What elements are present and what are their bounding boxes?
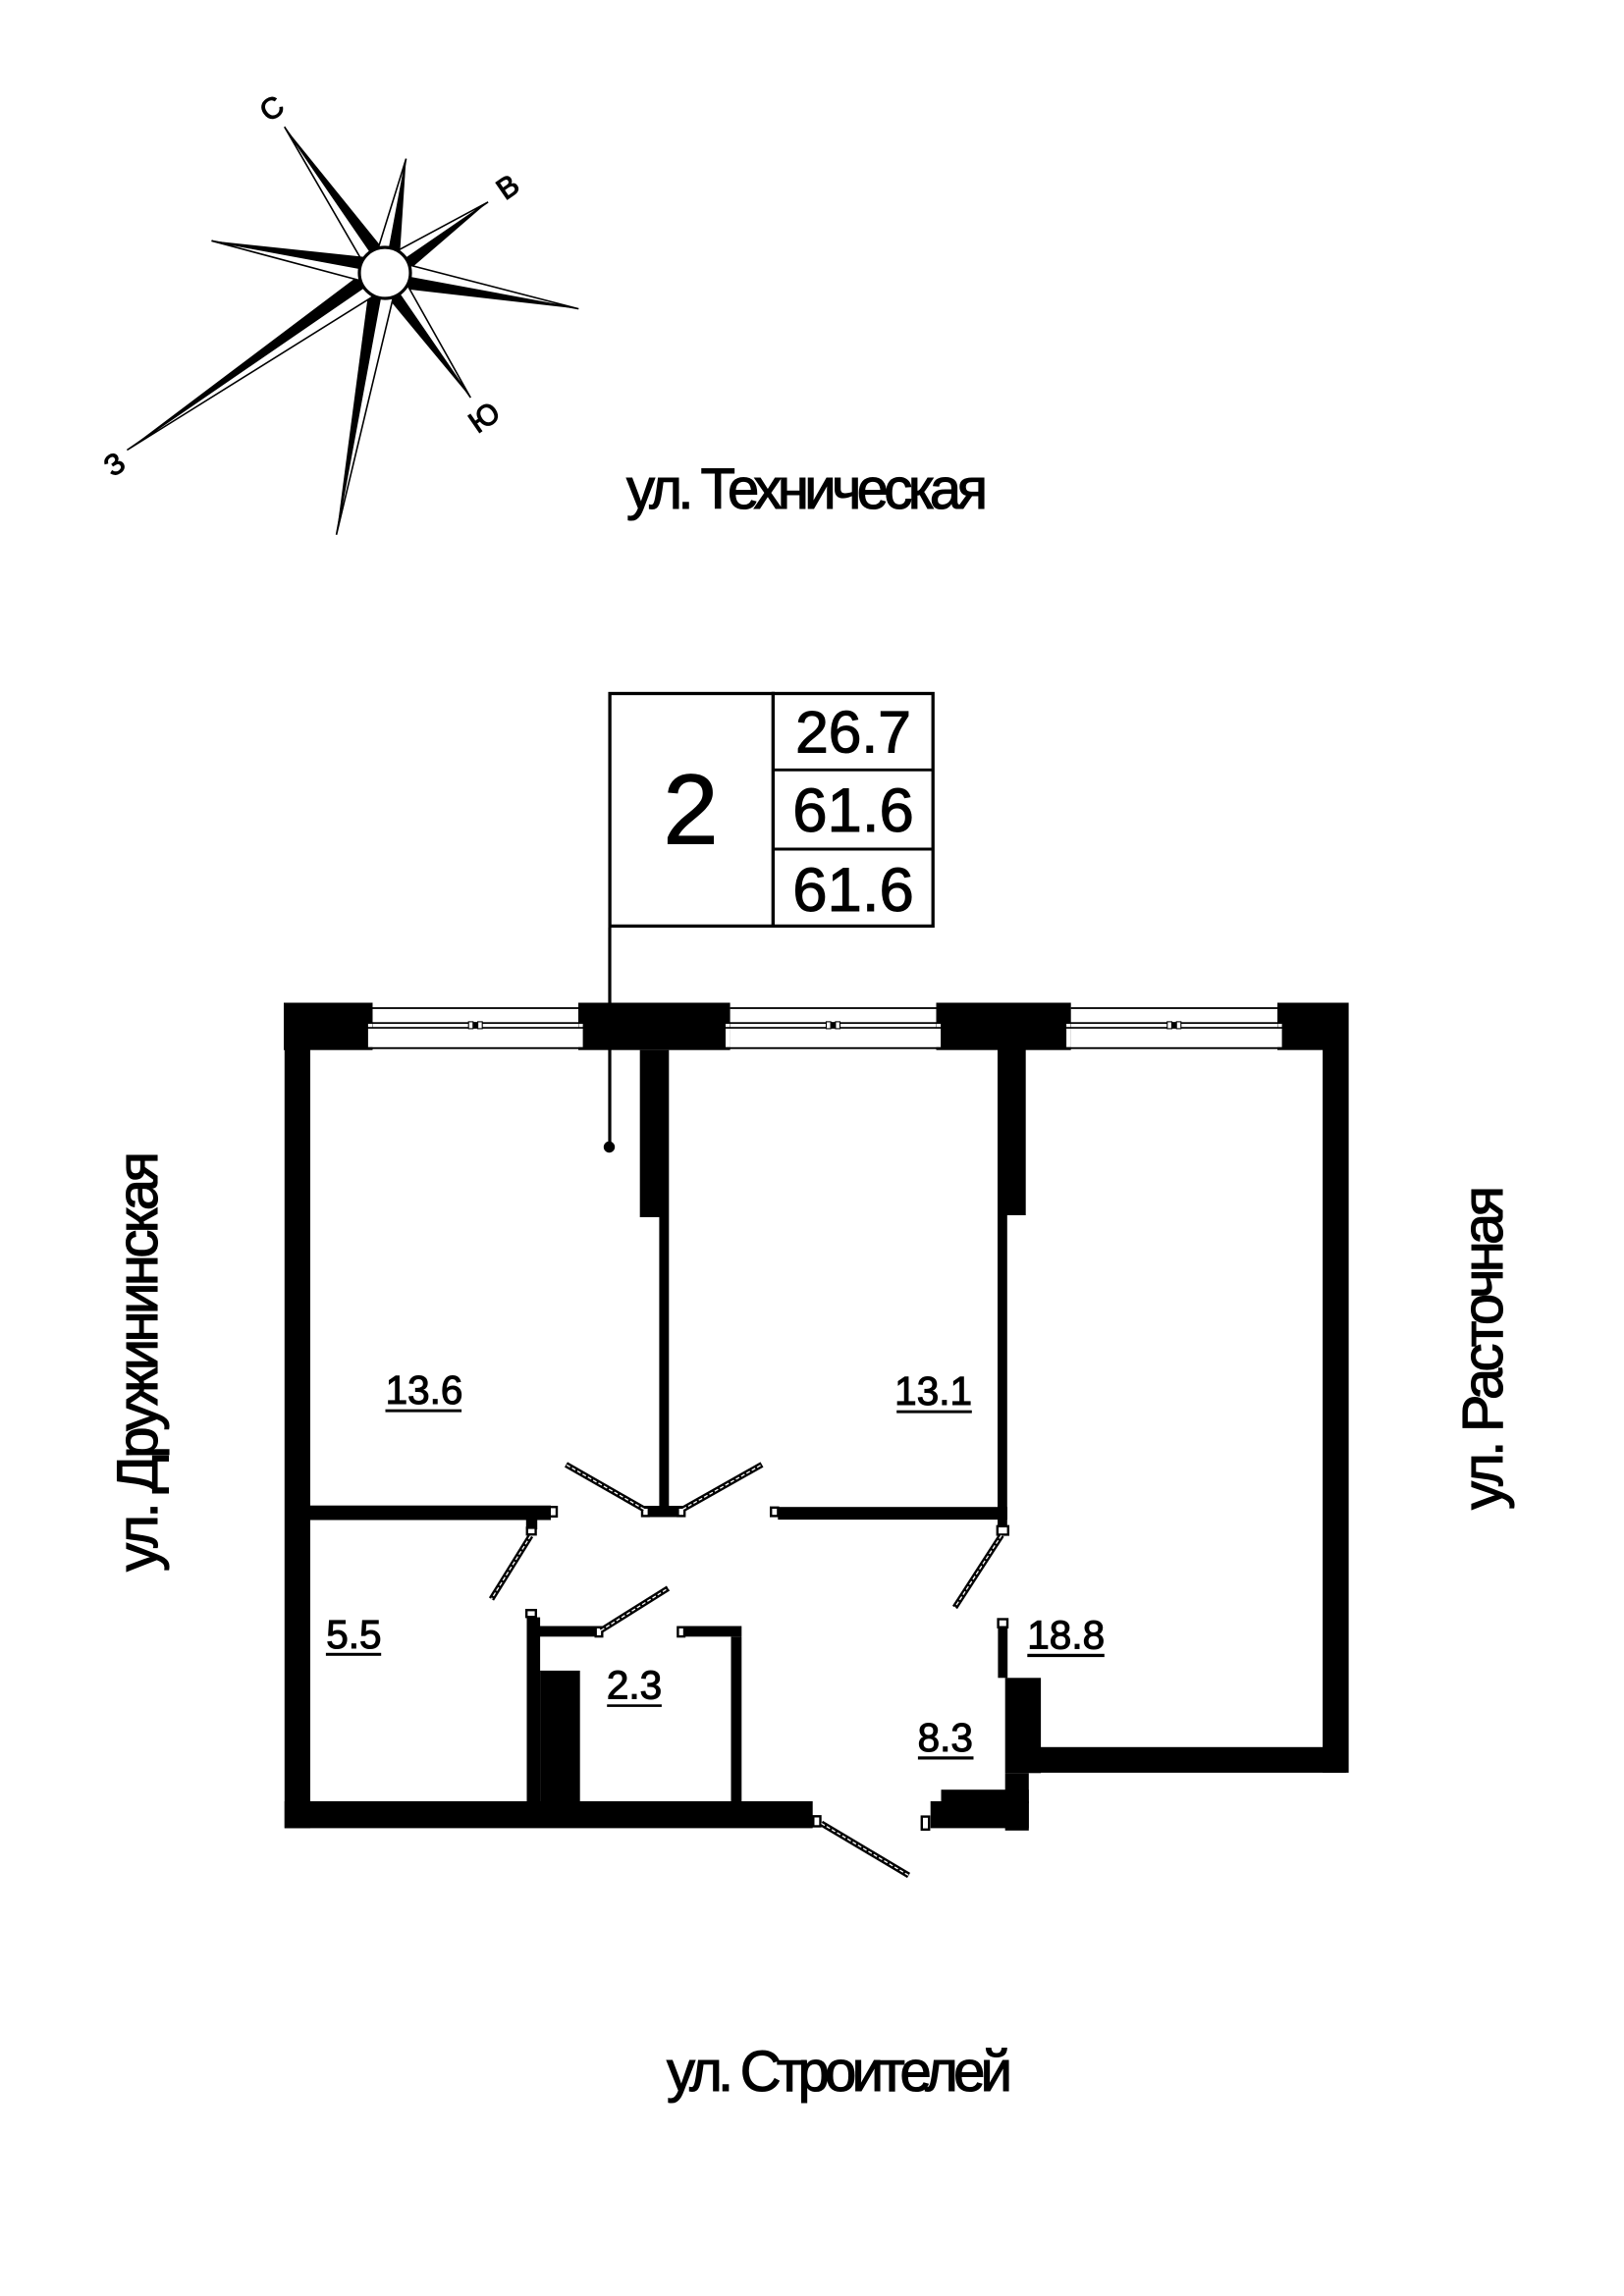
svg-text:26.7: 26.7 <box>795 698 911 765</box>
svg-text:2: 2 <box>663 756 718 866</box>
svg-text:ул. Техническая: ул. Техническая <box>626 457 988 521</box>
svg-text:13.1: 13.1 <box>894 1368 972 1414</box>
svg-text:2.3: 2.3 <box>607 1663 662 1708</box>
svg-text:61.6: 61.6 <box>792 856 914 925</box>
svg-text:ул. Строителей: ул. Строителей <box>667 2040 1012 2104</box>
svg-text:61.6: 61.6 <box>792 776 914 845</box>
svg-text:18.8: 18.8 <box>1027 1612 1105 1657</box>
svg-text:13.6: 13.6 <box>386 1367 463 1413</box>
svg-text:5.5: 5.5 <box>326 1612 381 1657</box>
svg-text:ул. Расточная: ул. Расточная <box>1451 1186 1515 1510</box>
svg-text:8.3: 8.3 <box>918 1715 973 1760</box>
svg-text:ул. Дружининская: ул. Дружининская <box>106 1151 170 1572</box>
